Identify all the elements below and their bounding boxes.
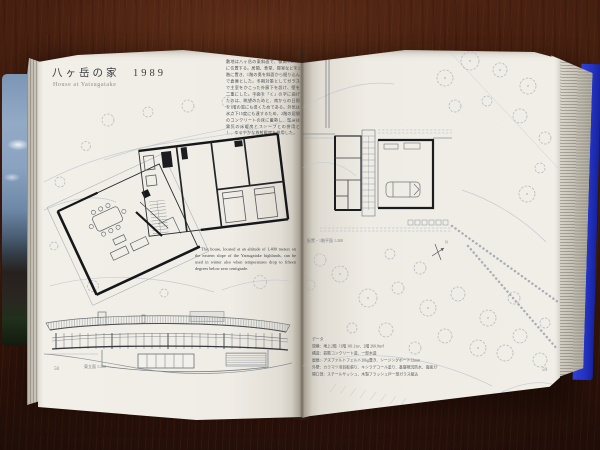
data-line: 開口部：スチールサッシュ、木製フラッシュ戸一部ガラス組込 (312, 371, 438, 378)
floor-slab-line (52, 346, 288, 350)
photo-scene: 八ヶ岳の家 1989 House at Yatsugatake 敷地は八ヶ岳の東… (0, 0, 600, 450)
caption-english: This house, located at an altitude of 1,… (195, 246, 296, 272)
page-title: 八ヶ岳の家 1989 (52, 65, 166, 80)
data-line: 屋根：アスファルトフェルト20kg葺き、シージングボード12mm (312, 357, 438, 364)
boundary-chain-lines (452, 226, 558, 350)
site-plan-label: 配置・1階平面 1:200 (307, 238, 343, 244)
vent-panel (226, 353, 266, 366)
page-subtitle: House at Yatsugatake (53, 82, 117, 88)
lower-floor-plan (302, 54, 452, 231)
project-data-block: データ 規模：地上2階（1階 101.1m²、2階 260.9m²） 構造：鉄筋… (312, 336, 438, 378)
plan-left-wing (47, 153, 209, 305)
north-label: N (445, 240, 448, 245)
book-front-cover-strip (2, 74, 30, 346)
brick-band (362, 136, 375, 210)
right-page: 配置・1階平面 1:200 N データ 規模：地上2階（1階 101.1m²、2… (302, 50, 560, 418)
elevation-label: 東立面 1:200 (84, 364, 106, 370)
slope-hatching (330, 384, 406, 406)
railing-mid (52, 337, 288, 342)
car-symbol (386, 182, 420, 197)
data-line: 外壁：カラマツ羽目板張り、キシラデコール塗り、基礎現況防水、南面ガラス (312, 364, 438, 371)
garage-shelves (384, 143, 420, 149)
north-arrow-icon (432, 244, 444, 260)
data-line: 規模：地上2階（1階 101.1m²、2階 260.9m²） (312, 343, 438, 350)
data-line: 構造：鉄筋コンクリート造、一部木造 (312, 350, 438, 357)
elevation-drawing (42, 304, 294, 382)
data-line: データ (312, 336, 438, 343)
page-number-left: 58 (54, 367, 59, 372)
page-number-right: 59 (542, 368, 547, 373)
deck-squares (408, 220, 448, 225)
brick-hatch (149, 200, 169, 234)
plan-right-wing (139, 134, 288, 236)
left-page: 八ヶ岳の家 1989 House at Yatsugatake 敷地は八ヶ岳の東… (38, 50, 302, 420)
lower-windows (138, 354, 194, 368)
